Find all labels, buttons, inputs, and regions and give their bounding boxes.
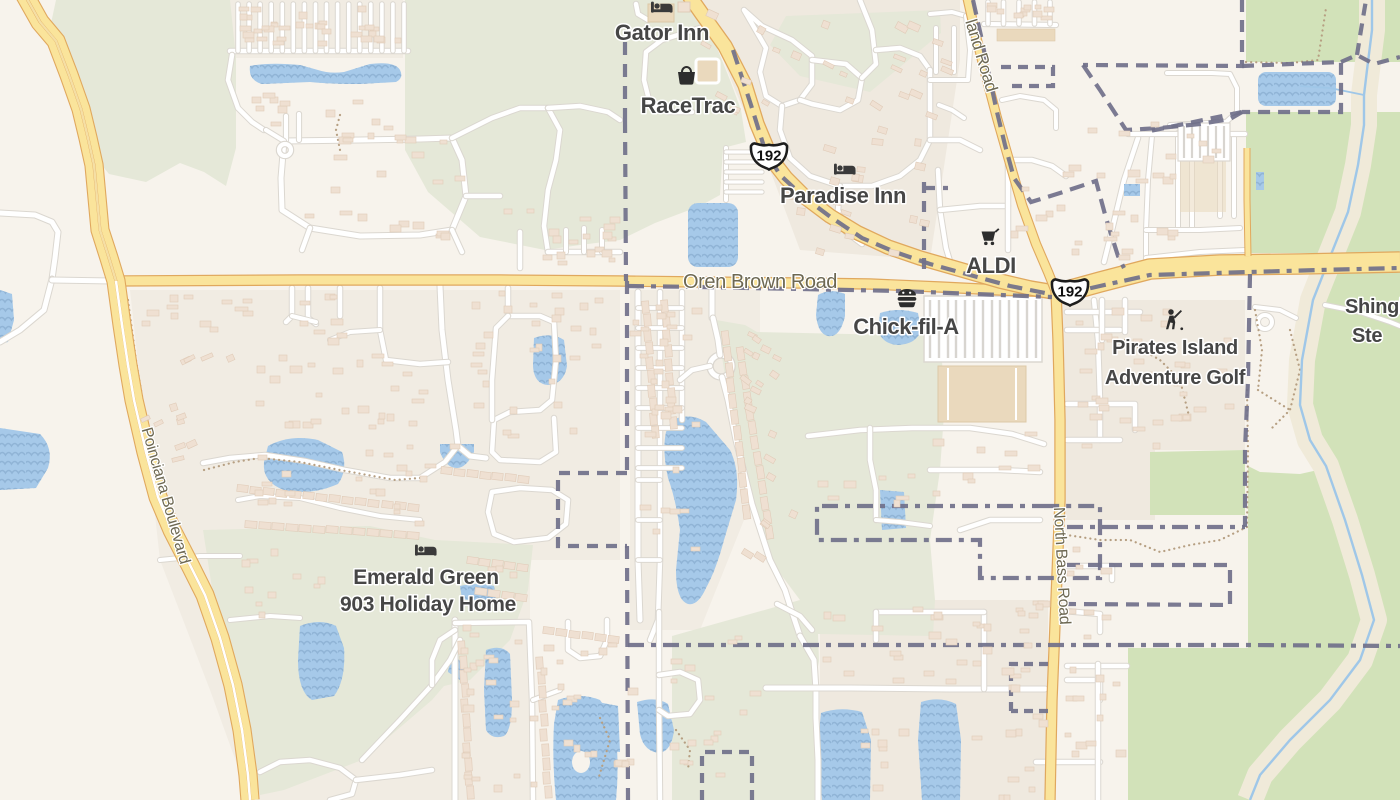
svg-text:Emerald Green: Emerald Green [353,566,499,589]
svg-text:903 Holiday Home: 903 Holiday Home [340,593,516,616]
svg-text:RaceTrac: RaceTrac [641,93,736,118]
svg-text:Oren Brown Road: Oren Brown Road [683,271,837,293]
svg-text:Paradise Inn: Paradise Inn [780,183,906,208]
svg-text:Adventure Golf: Adventure Golf [1105,367,1246,389]
svg-text:192: 192 [1057,283,1082,300]
svg-text:Shingle: Shingle [1345,296,1400,318]
svg-text:Gator Inn: Gator Inn [615,20,709,45]
svg-text:Chick-fil-A: Chick-fil-A [853,314,959,339]
svg-text:192: 192 [756,147,781,164]
svg-text:Pirates Island: Pirates Island [1112,337,1238,359]
svg-text:ALDI: ALDI [966,253,1016,278]
svg-text:Ste: Ste [1352,325,1382,347]
